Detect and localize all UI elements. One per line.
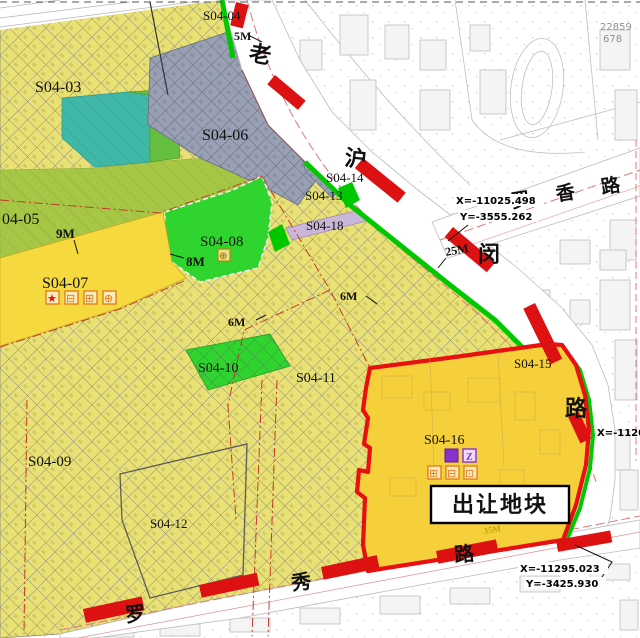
- facility-icon: ⊡: [465, 468, 474, 480]
- label-s04-16: S04-16: [424, 433, 464, 448]
- coord2-y: Y=-3425.930: [525, 579, 598, 590]
- callout-label: 出让地块: [452, 493, 548, 518]
- label-8m: 8M: [186, 254, 205, 269]
- label-s04-07: S04-07: [42, 275, 88, 292]
- road-char-lu-right: 路: [565, 396, 588, 422]
- transfer-parcel-callout: 出让地块: [431, 486, 569, 523]
- facility-icon: ⊕: [104, 293, 113, 305]
- label-6m-b: 6M: [228, 315, 245, 329]
- facility-icon: ⊞: [85, 293, 94, 305]
- coord3-partial: X=-1120: [597, 428, 640, 439]
- facility-icon: Z: [466, 452, 473, 463]
- coord2-x: X=-11295.023: [520, 564, 600, 575]
- corner-number-1: 22859: [600, 22, 632, 33]
- label-s04-12: S04-12: [150, 516, 188, 531]
- label-s04-11: S04-11: [296, 371, 336, 386]
- corner-number-2: 678: [603, 34, 622, 45]
- label-s04-08: S04-08: [200, 234, 243, 250]
- facility-icon-purple: [445, 449, 458, 462]
- map-canvas: S04-03 S04-04 04-05 S04-06 S04-07 S04-08…: [0, 0, 640, 638]
- coord1-y: Y=-3555.262: [459, 212, 532, 223]
- label-s04-10: S04-10: [198, 361, 238, 376]
- label-s04-04: S04-04: [203, 8, 241, 23]
- label-5m: 5M: [234, 29, 251, 43]
- label-s04-05: 04-05: [2, 211, 39, 228]
- label-s04-06: S04-06: [202, 127, 248, 144]
- road-char-xiu-bottom: 秀: [289, 569, 312, 595]
- star-icon: ★: [47, 293, 57, 305]
- coord1-x: X=-11025.498: [456, 196, 536, 207]
- label-s04-03: S04-03: [35, 79, 81, 96]
- label-9m: 9M: [56, 226, 75, 241]
- label-s04-13: S04-13: [305, 188, 343, 203]
- facility-icon: ⊞: [429, 468, 438, 480]
- road-char-hu: 沪: [343, 145, 368, 173]
- label-6m-a: 6M: [340, 289, 357, 303]
- label-s04-18: S04-18: [306, 218, 344, 233]
- road-char-luo-bottom: 罗: [124, 601, 146, 627]
- road-char-lao: 老: [246, 41, 273, 70]
- planning-map: S04-03 S04-04 04-05 S04-06 S04-07 S04-08…: [0, 0, 640, 638]
- facility-icon: ⊟: [66, 293, 75, 305]
- facility-icon: ⊟: [447, 468, 456, 480]
- facility-icon: ⊕: [219, 251, 227, 262]
- label-s04-09: S04-09: [28, 454, 71, 470]
- label-s04-15: S04-15: [514, 356, 552, 371]
- road-char-min: 闵: [478, 242, 500, 268]
- s04-08-icon: ⊕: [218, 249, 230, 262]
- road-char-lu-bottom: 路: [453, 541, 476, 567]
